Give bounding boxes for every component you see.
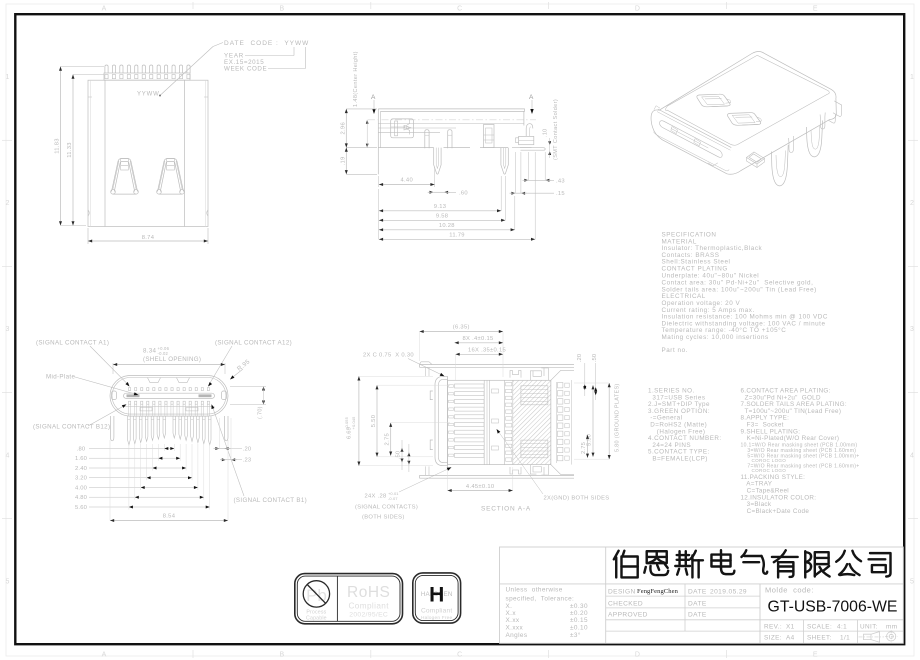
svg-text:5: 5 [6,578,10,585]
svg-text:2.75: 2.75 [581,442,587,454]
svg-text:B: B [279,652,284,659]
svg-text:WEEK CODE: WEEK CODE [224,66,267,73]
svg-text:+0.045: +0.045 [351,416,356,430]
svg-text:11.33: 11.33 [67,142,73,158]
svg-text:A4: A4 [786,635,795,642]
svg-text:YYWW: YYWW [137,92,160,98]
svg-text:DATE: DATE [688,589,707,596]
svg-text:.50: .50 [396,451,402,460]
svg-text:mm: mm [886,624,897,631]
svg-text:(SMT Contact Solder): (SMT Contact Solder) [553,99,559,160]
svg-text:(SIGNAL CONTACT A12): (SIGNAL CONTACT A12) [215,340,292,347]
svg-text:2002/95/EC: 2002/95/EC [349,612,388,619]
svg-text:Halogen Free: Halogen Free [421,615,453,621]
svg-text:4.80: 4.80 [75,495,87,501]
svg-text:FengFengChen: FengFengChen [637,588,679,595]
svg-text:SCALE:: SCALE: [807,624,832,631]
svg-text:.15: .15 [556,191,565,197]
svg-text:2: 2 [6,200,10,207]
svg-text:1/1: 1/1 [840,635,850,642]
svg-text:X1: X1 [786,624,795,631]
svg-text:Part no.: Part no. [662,347,688,354]
svg-text:B: B [279,6,284,13]
svg-text:A: A [529,94,534,101]
svg-text:Angles: Angles [506,632,528,639]
svg-text:4.40: 4.40 [401,178,413,184]
svg-text:2.40: 2.40 [75,466,87,472]
svg-text:Unless otherwise: Unless otherwise [506,587,563,594]
svg-text:(SIGNAL CONTACT B12): (SIGNAL CONTACT B12) [33,424,110,431]
svg-text:11.83: 11.83 [55,138,61,154]
svg-text:-0.055: -0.055 [344,416,349,429]
svg-text:X.x: X.x [506,610,517,617]
svg-text:±3°: ±3° [570,631,581,639]
svg-text:-0.07: -0.07 [388,496,398,501]
svg-text:UNIT:: UNIT: [860,624,878,631]
svg-text:(SHELL OPENING): (SHELL OPENING) [143,356,201,363]
svg-text:2X C 0.75 X 0.30: 2X C 0.75 X 0.30 [363,353,414,359]
svg-text:5: 5 [910,578,914,585]
svg-text:GT-USB-7006-WE: GT-USB-7006-WE [768,599,898,616]
svg-text:9.58: 9.58 [436,213,448,219]
svg-text:(SIGNAL CONTACT B1): (SIGNAL CONTACT B1) [234,497,308,504]
svg-text:1.48(Center Height): 1.48(Center Height) [353,51,359,107]
svg-text:(SIGNAL CONTACT A1): (SIGNAL CONTACT A1) [36,340,109,347]
svg-text:4:1: 4:1 [837,624,847,631]
svg-text:2.75: 2.75 [385,433,391,445]
svg-text:3.20: 3.20 [75,476,87,482]
svg-text:2: 2 [910,200,914,207]
svg-text:specified, Tolerance:: specified, Tolerance: [506,596,575,603]
svg-text:4.45±0.10: 4.45±0.10 [466,484,494,490]
svg-text:X.xx: X.xx [506,617,520,624]
svg-text:Temperature range: -40°C TO +1: Temperature range: -40°C TO +105°C [662,326,787,334]
svg-text:A: A [371,94,376,101]
svg-text:8X .4±0.15: 8X .4±0.15 [463,336,494,342]
svg-text:K=Ni-Plated(W/O Rear Cover): K=Ni-Plated(W/O Rear Cover) [741,435,840,442]
svg-text:RoHS: RoHS [347,584,390,601]
svg-text:D: D [635,652,640,659]
svg-text:C: C [457,652,462,659]
svg-text:.20: .20 [243,446,252,452]
svg-text:X.: X. [506,603,513,610]
svg-text:.60: .60 [459,190,468,196]
svg-text:4.00: 4.00 [75,485,87,491]
svg-text:2X(GND) BOTH SIDES: 2X(GND) BOTH SIDES [544,496,610,502]
svg-text:(SIGNAL CONTACTS): (SIGNAL CONTACTS) [355,505,418,511]
svg-text:.23: .23 [243,458,252,464]
svg-text:A: A [102,652,107,659]
svg-text:5.80 (GROUND PLATES): 5.80 (GROUND PLATES) [615,383,621,452]
svg-text:Molde code:: Molde code: [765,586,814,595]
svg-text:2019.05.29: 2019.05.29 [710,589,747,596]
svg-text:2.96: 2.96 [340,122,346,134]
svg-text:8.74: 8.74 [142,235,155,241]
svg-text:X.xxx: X.xxx [506,624,524,631]
svg-text:Compliant: Compliant [348,602,389,611]
svg-text:SHEET:: SHEET: [807,635,832,642]
svg-text:C: C [457,6,462,13]
svg-text:16X .35±0.15: 16X .35±0.15 [468,347,506,353]
svg-text:SIZE:: SIZE: [764,635,782,642]
svg-text:9.13: 9.13 [434,204,446,210]
svg-text:REV.:: REV.: [764,624,782,631]
svg-text:4: 4 [910,452,914,459]
svg-text:.20: .20 [577,354,583,363]
svg-text:±0.15: ±0.15 [570,617,588,624]
svg-text:(BOTH SIDES): (BOTH SIDES) [362,515,405,521]
svg-text:24X .28: 24X .28 [365,494,387,500]
svg-text:COROC LOGO: COROC LOGO [741,458,787,463]
svg-text:1.60: 1.60 [75,456,87,462]
svg-text:.19: .19 [340,156,346,165]
svg-text:4: 4 [6,452,10,459]
svg-text:3: 3 [6,326,10,333]
svg-text:E: E [813,6,818,13]
svg-text:3: 3 [910,326,914,333]
svg-text:C=Black+Date Code: C=Black+Date Code [741,508,810,515]
svg-text:A: A [102,6,107,13]
svg-text:Compliant: Compliant [421,608,453,615]
svg-text:DATE CODE : YYWW: DATE CODE : YYWW [224,40,309,47]
svg-text:APPROVED: APPROVED [608,611,648,618]
svg-text:E: E [813,652,818,659]
svg-text:DATE: DATE [688,600,707,607]
svg-text:Capable: Capable [306,616,327,622]
svg-text:8.54: 8.54 [163,514,176,520]
svg-text:CHECKED: CHECKED [608,600,643,607]
svg-text:10.28: 10.28 [439,223,455,229]
svg-text:±0.30: ±0.30 [570,603,588,610]
svg-text:11.79: 11.79 [449,232,465,238]
svg-text:(.70): (.70) [258,406,264,419]
svg-text:Mating cycles: 10,000 insertio: Mating cycles: 10,000 insertions [662,334,769,341]
svg-text:5.60: 5.60 [75,505,87,511]
svg-text:1: 1 [910,74,914,81]
svg-text:.43: .43 [556,178,565,184]
svg-text:.10: .10 [543,128,549,137]
svg-text:±0.20: ±0.20 [570,610,588,617]
svg-text:±0.10: ±0.10 [570,624,588,631]
svg-text:DATE: DATE [688,611,707,618]
svg-text:.80: .80 [77,446,86,452]
svg-text:.50: .50 [592,354,598,363]
svg-text:B=FEMALE(LCP): B=FEMALE(LCP) [648,456,708,463]
svg-text:1: 1 [6,74,10,81]
svg-text:D: D [635,6,640,13]
svg-text:H: H [429,584,444,607]
svg-text:8.34: 8.34 [143,347,157,354]
svg-text:(6.35): (6.35) [453,325,470,331]
svg-text:5.50: 5.50 [371,415,377,427]
svg-text:DESIGN: DESIGN [608,589,636,596]
svg-text:SECTION A-A: SECTION A-A [481,506,531,513]
svg-text:Mid-Plate: Mid-Plate [46,374,75,381]
svg-text:COROC LOGO: COROC LOGO [741,468,787,473]
